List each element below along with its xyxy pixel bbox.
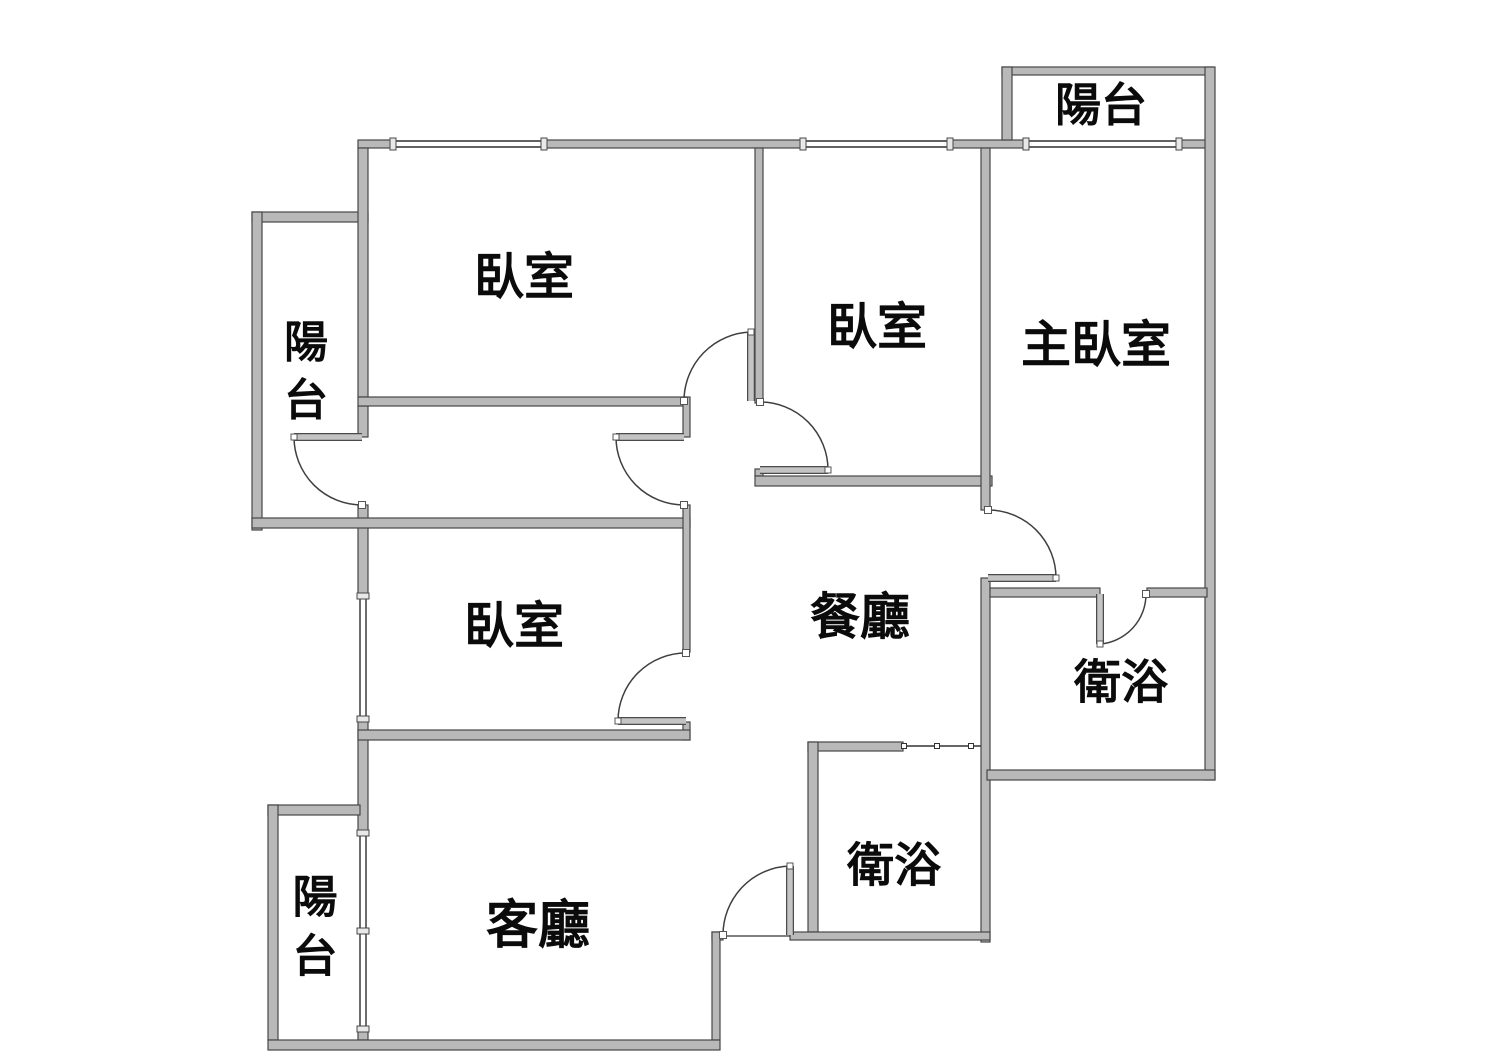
window-bedroom-middle-left-cap-start (357, 593, 369, 599)
window-master-bedroom-cap-end (1176, 138, 1182, 150)
east-exterior-wall (1205, 67, 1215, 780)
living-se-jog-wall (712, 932, 720, 1040)
hall-divider-seg-2 (683, 505, 690, 652)
corridor-south-wall (252, 518, 690, 528)
sliding-door-bathroom-center-tick-2 (969, 744, 974, 749)
west-wall-seg-1 (358, 148, 368, 397)
room-label-bedroom-top-left: 臥室 (474, 249, 574, 305)
balcony-tr-left-wall (1002, 67, 1012, 140)
door-balcony-left-jamb-cap (359, 502, 366, 509)
window-bedroom-top-left-cap-start (390, 138, 396, 150)
balcony-bl-outer-wall (268, 805, 278, 1040)
window-bedroom-top-middle-cap-end (947, 138, 953, 150)
top-wall-seg-1 (358, 140, 395, 148)
bedroom-tl-south-wall (358, 397, 687, 406)
door-bathroom-right-jamb-cap (1143, 591, 1150, 598)
room-label-bedroom-top-middle: 臥室 (827, 299, 927, 355)
door-bedroom-middle-left-jamb-cap (683, 650, 690, 657)
bath-right-top-seg-2 (1147, 588, 1207, 597)
door-master-bedroom-jamb-cap (985, 507, 992, 514)
bath-center-top-wall (808, 742, 903, 751)
window-master-bedroom-cap-start (1023, 138, 1029, 150)
door-corridor-leaf-cap (613, 434, 619, 440)
window-bedroom-top-middle-cap-start (800, 138, 806, 150)
central-divider-seg-2 (981, 578, 990, 942)
window-living-room-cap-end (357, 1026, 369, 1032)
south-exterior-wall (268, 1040, 720, 1050)
central-divider-seg-1 (981, 148, 990, 510)
window-living-room-cap-start (357, 830, 369, 836)
west-wall-seg-2 (358, 406, 368, 437)
door-entry-jamb-cap (720, 932, 727, 939)
room-label-bathroom-center: 衛浴 (846, 839, 942, 892)
entry-wall-seg-1 (790, 932, 990, 940)
door-master-bedroom-leaf-cap (1053, 575, 1059, 581)
room-label-bedroom-middle-left: 臥室 (464, 598, 564, 654)
room-label-master-bedroom: 主臥室 (1021, 317, 1171, 373)
bedroom-tm-south-wall (755, 476, 992, 486)
bedroom-ml-south-wall (358, 730, 690, 740)
door-entry-leaf-cap (787, 863, 793, 869)
door-bedroom-top-middle-leaf-cap (825, 467, 831, 473)
bath-right-south-wall (987, 770, 1215, 780)
room-label-living-room: 客廳 (486, 897, 590, 955)
window-bedroom-top-left-cap-end (541, 138, 547, 150)
top-wall-seg-2 (542, 140, 805, 148)
door-bathroom-right-leaf-cap (1097, 641, 1103, 647)
top-wall-seg-3 (948, 140, 1028, 148)
door-bedroom-middle-left-leaf-cap (615, 718, 621, 724)
door-bedroom-top-left-jamb-cap (681, 398, 688, 405)
room-label-balcony-top-right: 陽台 (1055, 79, 1147, 131)
sliding-door-bathroom-center-tick-0 (902, 744, 907, 749)
room-label-bathroom-right: 衛浴 (1073, 656, 1169, 709)
balcony-bl-top-wall (268, 805, 360, 815)
window-bedroom-middle-left-cap-end (357, 716, 369, 722)
balcony-tr-top-wall (1002, 67, 1213, 75)
balcony-left-outer-wall (252, 212, 262, 530)
window-living-room-cap-mid (357, 928, 369, 934)
balcony-left-top-wall (252, 212, 368, 222)
bath-right-top-seg-1 (990, 588, 1100, 597)
floorplan-canvas: 臥室臥室主臥室陽台陽台臥室餐廳衛浴衛浴客廳陽台 (0, 0, 1510, 1062)
room-label-dining-room: 餐廳 (810, 589, 910, 645)
floorplan-page: 臥室臥室主臥室陽台陽台臥室餐廳衛浴衛浴客廳陽台 (0, 0, 1510, 1062)
door-balcony-left-leaf-cap (291, 434, 297, 440)
sliding-door-bathroom-center-tick-1 (935, 744, 940, 749)
bath-center-left-wall (808, 742, 818, 932)
door-bedroom-top-left-leaf-cap (748, 329, 754, 335)
door-bedroom-top-middle-jamb-cap (757, 399, 764, 406)
door-corridor-jamb-cap (681, 502, 688, 509)
divider-tl-tm-wall (755, 148, 763, 403)
